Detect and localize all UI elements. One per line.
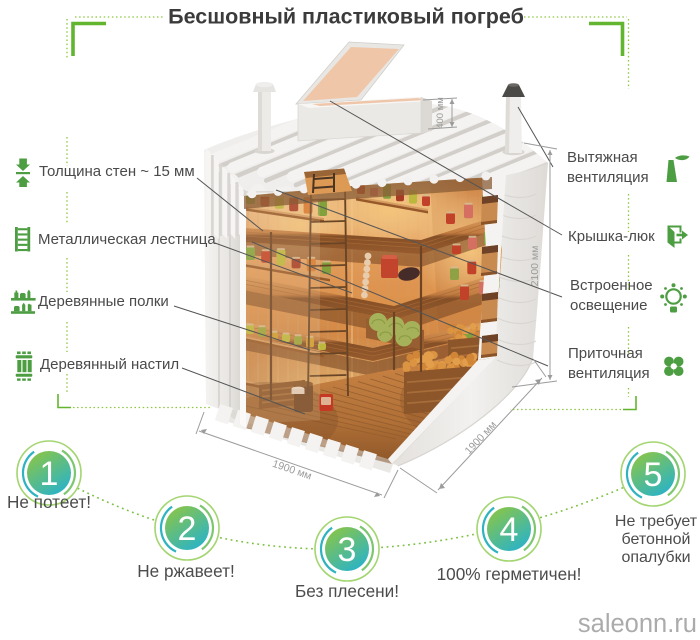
svg-text:бетонной: бетонной <box>622 531 691 548</box>
svg-text:Бесшовный пластиковый погреб: Бесшовный пластиковый погреб <box>168 5 524 29</box>
svg-text:Приточная: Приточная <box>568 345 643 362</box>
svg-text:Толщина стен ~ 15 мм: Толщина стен ~ 15 мм <box>39 163 195 180</box>
svg-text:1900 мм: 1900 мм <box>271 458 313 483</box>
svg-text:опалубки: опалубки <box>621 549 690 566</box>
svg-text:Металлическая лестница: Металлическая лестница <box>38 231 216 248</box>
svg-text:Без плесени!: Без плесени! <box>295 581 399 601</box>
svg-text:1: 1 <box>40 455 59 493</box>
svg-text:Крышка-люк: Крышка-люк <box>568 228 655 245</box>
svg-text:Деревянный настил: Деревянный настил <box>40 356 179 373</box>
svg-text:400 мм: 400 мм <box>435 97 446 129</box>
svg-text:вентиляция: вентиляция <box>567 169 649 186</box>
svg-text:Деревянные полки: Деревянные полки <box>38 293 169 310</box>
svg-text:вентиляция: вентиляция <box>568 365 650 382</box>
svg-text:Не потеет!: Не потеет! <box>7 492 91 512</box>
svg-text:4: 4 <box>500 511 519 549</box>
svg-text:2100 мм: 2100 мм <box>529 246 541 287</box>
svg-text:Не ржавеет!: Не ржавеет! <box>137 561 235 581</box>
svg-text:saleonn.ru: saleonn.ru <box>578 610 697 638</box>
svg-text:100% герметичен!: 100% герметичен! <box>437 564 582 584</box>
svg-text:освещение: освещение <box>570 297 648 314</box>
svg-text:Вытяжная: Вытяжная <box>567 149 638 166</box>
svg-text:Не требует: Не требует <box>615 513 698 530</box>
svg-text:3: 3 <box>338 531 357 569</box>
svg-text:Встроенное: Встроенное <box>570 277 653 294</box>
svg-text:2: 2 <box>178 510 197 548</box>
svg-text:5: 5 <box>644 456 663 494</box>
